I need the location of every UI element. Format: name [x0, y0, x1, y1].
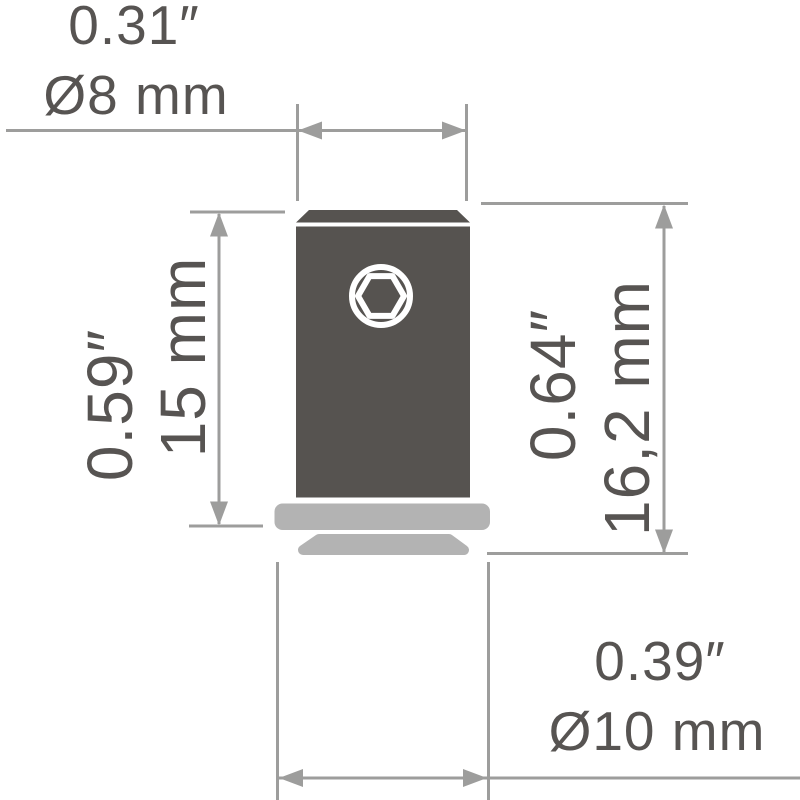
arrow-left-icon — [298, 122, 322, 140]
top-width-inches-label: 0.31″ — [68, 0, 200, 56]
left-height-dimension: 0.59″ 15 mm — [74, 212, 285, 526]
arrow-down-icon — [210, 502, 228, 526]
arrow-right-icon — [463, 769, 487, 787]
part-flange — [275, 504, 491, 531]
left-height-inches-label: 0.59″ — [74, 329, 146, 481]
bottom-diameter-inches-label: 0.39″ — [594, 630, 726, 692]
right-height-metric-label: 16,2 mm — [591, 280, 663, 536]
top-width-metric-label: Ø8 mm — [43, 64, 228, 126]
arrow-up-icon — [210, 213, 228, 237]
dimension-diagram: 0.31″ Ø8 mm 0.59″ 15 — [0, 0, 800, 800]
arrow-right-icon — [442, 122, 466, 140]
part-foot — [303, 539, 464, 550]
bottom-diameter-metric-label: Ø10 mm — [549, 700, 766, 762]
part-top-chamfer — [296, 210, 470, 223]
product-part — [275, 210, 491, 550]
right-height-dimension: 0.64″ 16,2 mm — [481, 204, 688, 554]
right-height-inches-label: 0.64″ — [517, 309, 589, 461]
arrow-up-icon — [655, 205, 673, 229]
arrow-left-icon — [279, 769, 303, 787]
top-width-dimension: 0.31″ Ø8 mm — [6, 0, 467, 201]
left-height-metric-label: 15 mm — [147, 257, 219, 458]
diagram-canvas: 0.31″ Ø8 mm 0.59″ 15 — [0, 0, 800, 800]
bottom-diameter-dimension: 0.39″ Ø10 mm — [278, 562, 800, 800]
